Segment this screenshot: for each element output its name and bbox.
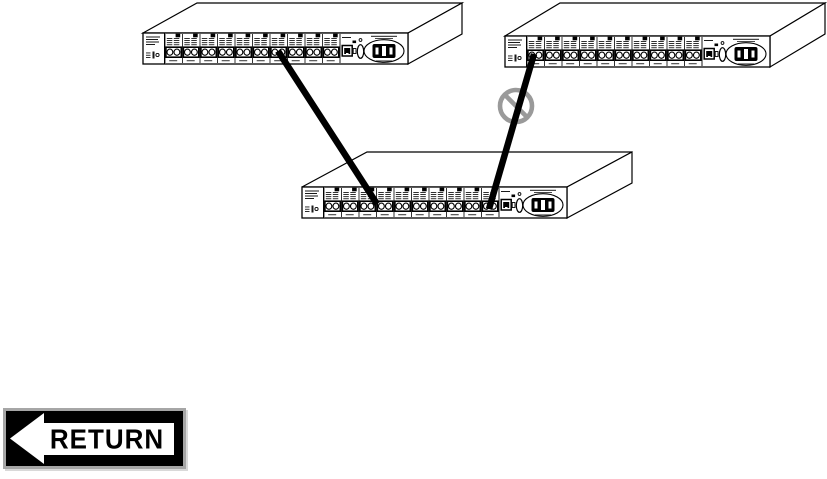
return-button[interactable]: RETURN: [3, 408, 186, 469]
return-label: RETURN: [50, 425, 164, 452]
document-page: RETURN: [0, 0, 827, 479]
arrow-head: [10, 413, 44, 464]
return-label-box: RETURN: [40, 423, 174, 455]
hub-top-right: [505, 3, 825, 67]
hub-top-left: [143, 3, 462, 64]
